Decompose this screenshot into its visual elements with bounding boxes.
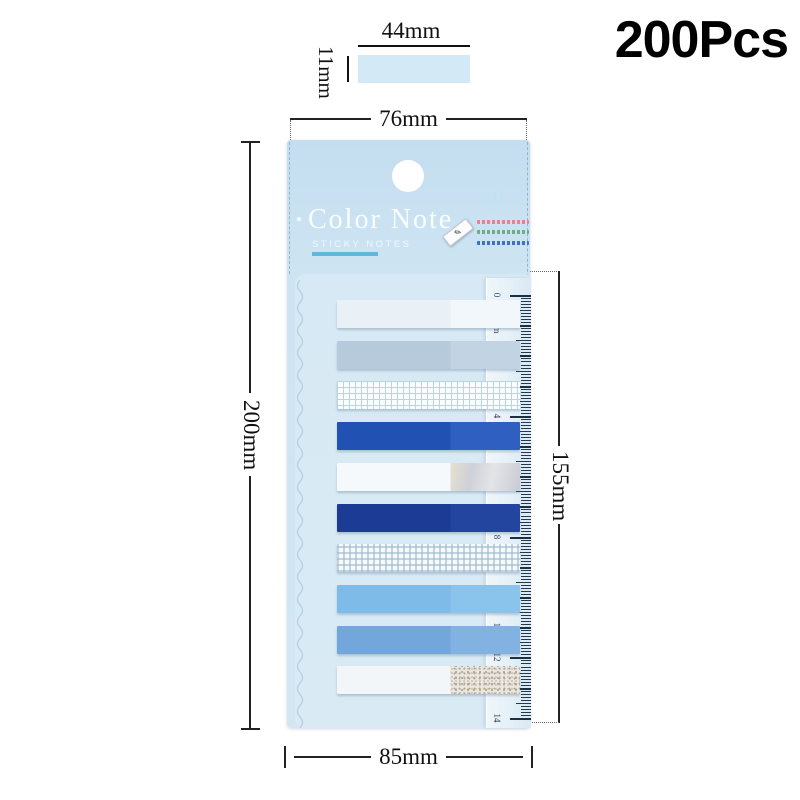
ruler-minor-tick xyxy=(521,588,531,589)
ruler-minor-tick xyxy=(521,437,531,438)
ruler-minor-tick xyxy=(521,425,531,426)
swatch-width-line xyxy=(358,45,470,47)
ruler-minor-tick xyxy=(521,434,531,435)
navy-blue-tab xyxy=(337,504,520,532)
ruler-minor-tick xyxy=(521,633,531,634)
gingham-check-tab xyxy=(337,544,520,572)
ruler-minor-tick xyxy=(521,377,531,378)
ruler-minor-tick xyxy=(521,555,531,556)
ruler-minor-tick xyxy=(521,525,531,526)
perforation-edge-right xyxy=(527,142,528,282)
ruler-minor-tick xyxy=(521,334,531,335)
ruler-minor-tick xyxy=(521,682,531,683)
card-title: Color Note xyxy=(308,204,453,236)
ruler-minor-tick xyxy=(521,543,531,544)
ruler-minor-tick xyxy=(521,679,531,680)
ruler-minor-tick xyxy=(521,443,531,444)
medium-blue-tab xyxy=(337,626,520,654)
fine-print-line-green xyxy=(477,230,529,234)
ruler-minor-tick xyxy=(521,534,531,535)
ruler-minor-tick xyxy=(521,365,531,366)
swatch-width-label: 44mm xyxy=(350,18,472,44)
dimension-top-width: 76mm xyxy=(290,104,527,134)
ruler-minor-tick xyxy=(521,570,531,571)
piece-count-label: 200Pcs xyxy=(615,10,788,70)
ruler-minor-tick xyxy=(521,413,531,414)
ruler-minor-tick xyxy=(521,368,531,369)
ruler-minor-tick xyxy=(521,449,531,450)
ruler-minor-tick xyxy=(521,706,531,707)
ruler-minor-tick xyxy=(521,676,531,677)
pale-white-blue-tab xyxy=(337,300,520,328)
ruler-minor-tick xyxy=(521,576,531,577)
ruler-major-tick xyxy=(510,718,531,720)
pen-icon: ✎ xyxy=(453,227,463,237)
ruler-minor-tick xyxy=(521,464,531,465)
ruler-minor-tick xyxy=(521,337,531,338)
ruler-minor-tick xyxy=(521,519,531,520)
ruler-minor-tick xyxy=(521,473,531,474)
ruler-minor-tick xyxy=(521,585,531,586)
dimension-cap xyxy=(531,746,533,768)
colors-count: 10 xyxy=(473,187,513,207)
ruler-minor-tick xyxy=(521,600,531,601)
pale-gray-blue-tab xyxy=(337,341,520,369)
ruler-minor-tick xyxy=(521,494,531,495)
ruler-minor-tick xyxy=(521,307,531,308)
dimension-bottom-width: 85mm xyxy=(284,744,533,770)
ruler-minor-tick xyxy=(521,618,531,619)
ruler-minor-tick xyxy=(521,428,531,429)
ruler-minor-tick xyxy=(521,621,531,622)
dimension-line xyxy=(290,118,371,120)
ruler-number: 14 xyxy=(492,711,502,725)
white-holographic-tab xyxy=(337,463,520,491)
ruler-minor-tick xyxy=(521,615,531,616)
ruler-minor-tick xyxy=(521,392,531,393)
ruler-minor-tick xyxy=(521,301,531,302)
ruler-minor-tick xyxy=(521,422,531,423)
ruler-minor-tick xyxy=(521,694,531,695)
ruler-minor-tick xyxy=(521,374,531,375)
ruler-minor-tick xyxy=(521,470,531,471)
subtitle-underline xyxy=(312,252,378,256)
ruler-minor-tick xyxy=(521,609,531,610)
dimension-left-height-label: 200mm xyxy=(236,394,264,476)
ruler-minor-tick xyxy=(521,485,531,486)
ruler-minor-tick xyxy=(521,488,531,489)
ruler-minor-tick xyxy=(521,651,531,652)
ruler-minor-tick xyxy=(521,697,531,698)
ruler-minor-tick xyxy=(521,573,531,574)
ruler-minor-tick xyxy=(521,663,531,664)
ruler-minor-tick xyxy=(521,352,531,353)
ruler-minor-tick xyxy=(521,528,531,529)
sticky-tab-swatch xyxy=(358,55,470,83)
dimension-line xyxy=(249,476,251,729)
ruler-minor-tick xyxy=(521,304,531,305)
ruler-minor-tick xyxy=(521,407,531,408)
dimension-bottom-width-label: 85mm xyxy=(379,744,438,770)
ruler-minor-tick xyxy=(521,479,531,480)
blue-grid-tab xyxy=(337,381,520,409)
ruler-minor-tick xyxy=(521,419,531,420)
ruler-minor-tick xyxy=(521,500,531,501)
ruler-minor-tick xyxy=(521,509,531,510)
sticky-tab-strips xyxy=(337,300,520,695)
hang-hole xyxy=(392,160,424,192)
ruler-minor-tick xyxy=(521,654,531,655)
ruler-minor-tick xyxy=(521,395,531,396)
ruler-minor-tick xyxy=(521,503,531,504)
ruler-minor-tick xyxy=(521,316,531,317)
ruler-minor-tick xyxy=(521,512,531,513)
perforation-edge-left xyxy=(289,142,290,274)
ruler-minor-tick xyxy=(521,358,531,359)
ruler-minor-tick xyxy=(521,346,531,347)
dimension-cap xyxy=(284,746,286,768)
ruler-minor-tick xyxy=(521,343,531,344)
ruler-major-tick xyxy=(510,295,531,297)
ruler-minor-tick xyxy=(521,561,531,562)
ruler-minor-tick xyxy=(521,389,531,390)
ruler-minor-tick xyxy=(521,712,531,713)
ruler-minor-tick xyxy=(521,660,531,661)
dimension-top-width-label: 76mm xyxy=(379,106,438,132)
ruler-minor-tick xyxy=(521,467,531,468)
ruler-minor-tick xyxy=(521,349,531,350)
ruler-minor-tick xyxy=(521,482,531,483)
ruler-minor-tick xyxy=(521,546,531,547)
ruler-minor-tick xyxy=(521,398,531,399)
ruler-minor-tick xyxy=(521,558,531,559)
ruler-minor-tick xyxy=(521,700,531,701)
ruler-minor-tick xyxy=(521,383,531,384)
ruler-minor-tick xyxy=(521,328,531,329)
ruler-minor-tick xyxy=(521,549,531,550)
ruler-minor-tick xyxy=(521,579,531,580)
dimension-line xyxy=(558,271,560,446)
ruler-minor-tick xyxy=(521,298,531,299)
dimension-line xyxy=(249,142,251,393)
ruler-minor-tick xyxy=(521,531,531,532)
ruler-minor-tick xyxy=(521,645,531,646)
ruler-minor-tick xyxy=(521,564,531,565)
ruler-minor-tick xyxy=(521,670,531,671)
ruler-minor-tick xyxy=(521,594,531,595)
ruler-minor-tick xyxy=(521,624,531,625)
ruler-minor-tick xyxy=(521,639,531,640)
colors-count-badge: 10 colors xyxy=(473,187,513,215)
white-glitter-tab xyxy=(337,666,520,694)
ruler-minor-tick xyxy=(516,703,531,704)
swatch-height-line xyxy=(347,56,349,82)
ruler-minor-tick xyxy=(521,516,531,517)
ruler-minor-tick xyxy=(521,380,531,381)
ruler-minor-tick xyxy=(521,452,531,453)
title-dot xyxy=(297,217,301,221)
ruler-minor-tick xyxy=(521,603,531,604)
ruler-minor-tick xyxy=(521,322,531,323)
ruler-minor-tick xyxy=(521,331,531,332)
ruler-minor-tick xyxy=(521,648,531,649)
ruler-minor-tick xyxy=(521,455,531,456)
dimension-line xyxy=(558,524,560,723)
dimension-right-height-label: 155mm xyxy=(545,446,573,526)
ruler-minor-tick xyxy=(521,458,531,459)
ruler-minor-tick xyxy=(521,540,531,541)
dimension-line xyxy=(446,118,527,120)
ruler-minor-tick xyxy=(521,636,531,637)
ruler-minor-tick xyxy=(521,404,531,405)
ruler-minor-tick xyxy=(521,591,531,592)
ruler-minor-tick xyxy=(521,410,531,411)
ruler-minor-tick xyxy=(521,606,531,607)
ruler-minor-tick xyxy=(521,709,531,710)
swatch-height-label: 11mm xyxy=(312,46,338,92)
fine-print-line-red xyxy=(477,220,529,224)
ruler-minor-tick xyxy=(521,313,531,314)
ruler-minor-tick xyxy=(521,667,531,668)
dimension-cap xyxy=(241,728,260,730)
ruler-minor-tick xyxy=(521,630,531,631)
dimension-line xyxy=(446,756,523,758)
ruler-minor-tick xyxy=(521,361,531,362)
ruler-minor-tick xyxy=(521,691,531,692)
ruler-minor-tick xyxy=(521,497,531,498)
ruler-minor-tick xyxy=(521,440,531,441)
wavy-edge-decoration xyxy=(291,280,305,728)
card-subtitle: STICKY NOTES xyxy=(312,239,412,250)
ruler-minor-tick xyxy=(521,685,531,686)
dimension-line xyxy=(294,756,371,758)
sky-blue-tab xyxy=(337,585,520,613)
colors-count-unit: colors xyxy=(473,207,513,215)
royal-blue-tab xyxy=(337,422,520,450)
ruler-minor-tick xyxy=(521,319,531,320)
fine-print-line-blue xyxy=(477,241,529,245)
ruler-minor-tick xyxy=(521,715,531,716)
